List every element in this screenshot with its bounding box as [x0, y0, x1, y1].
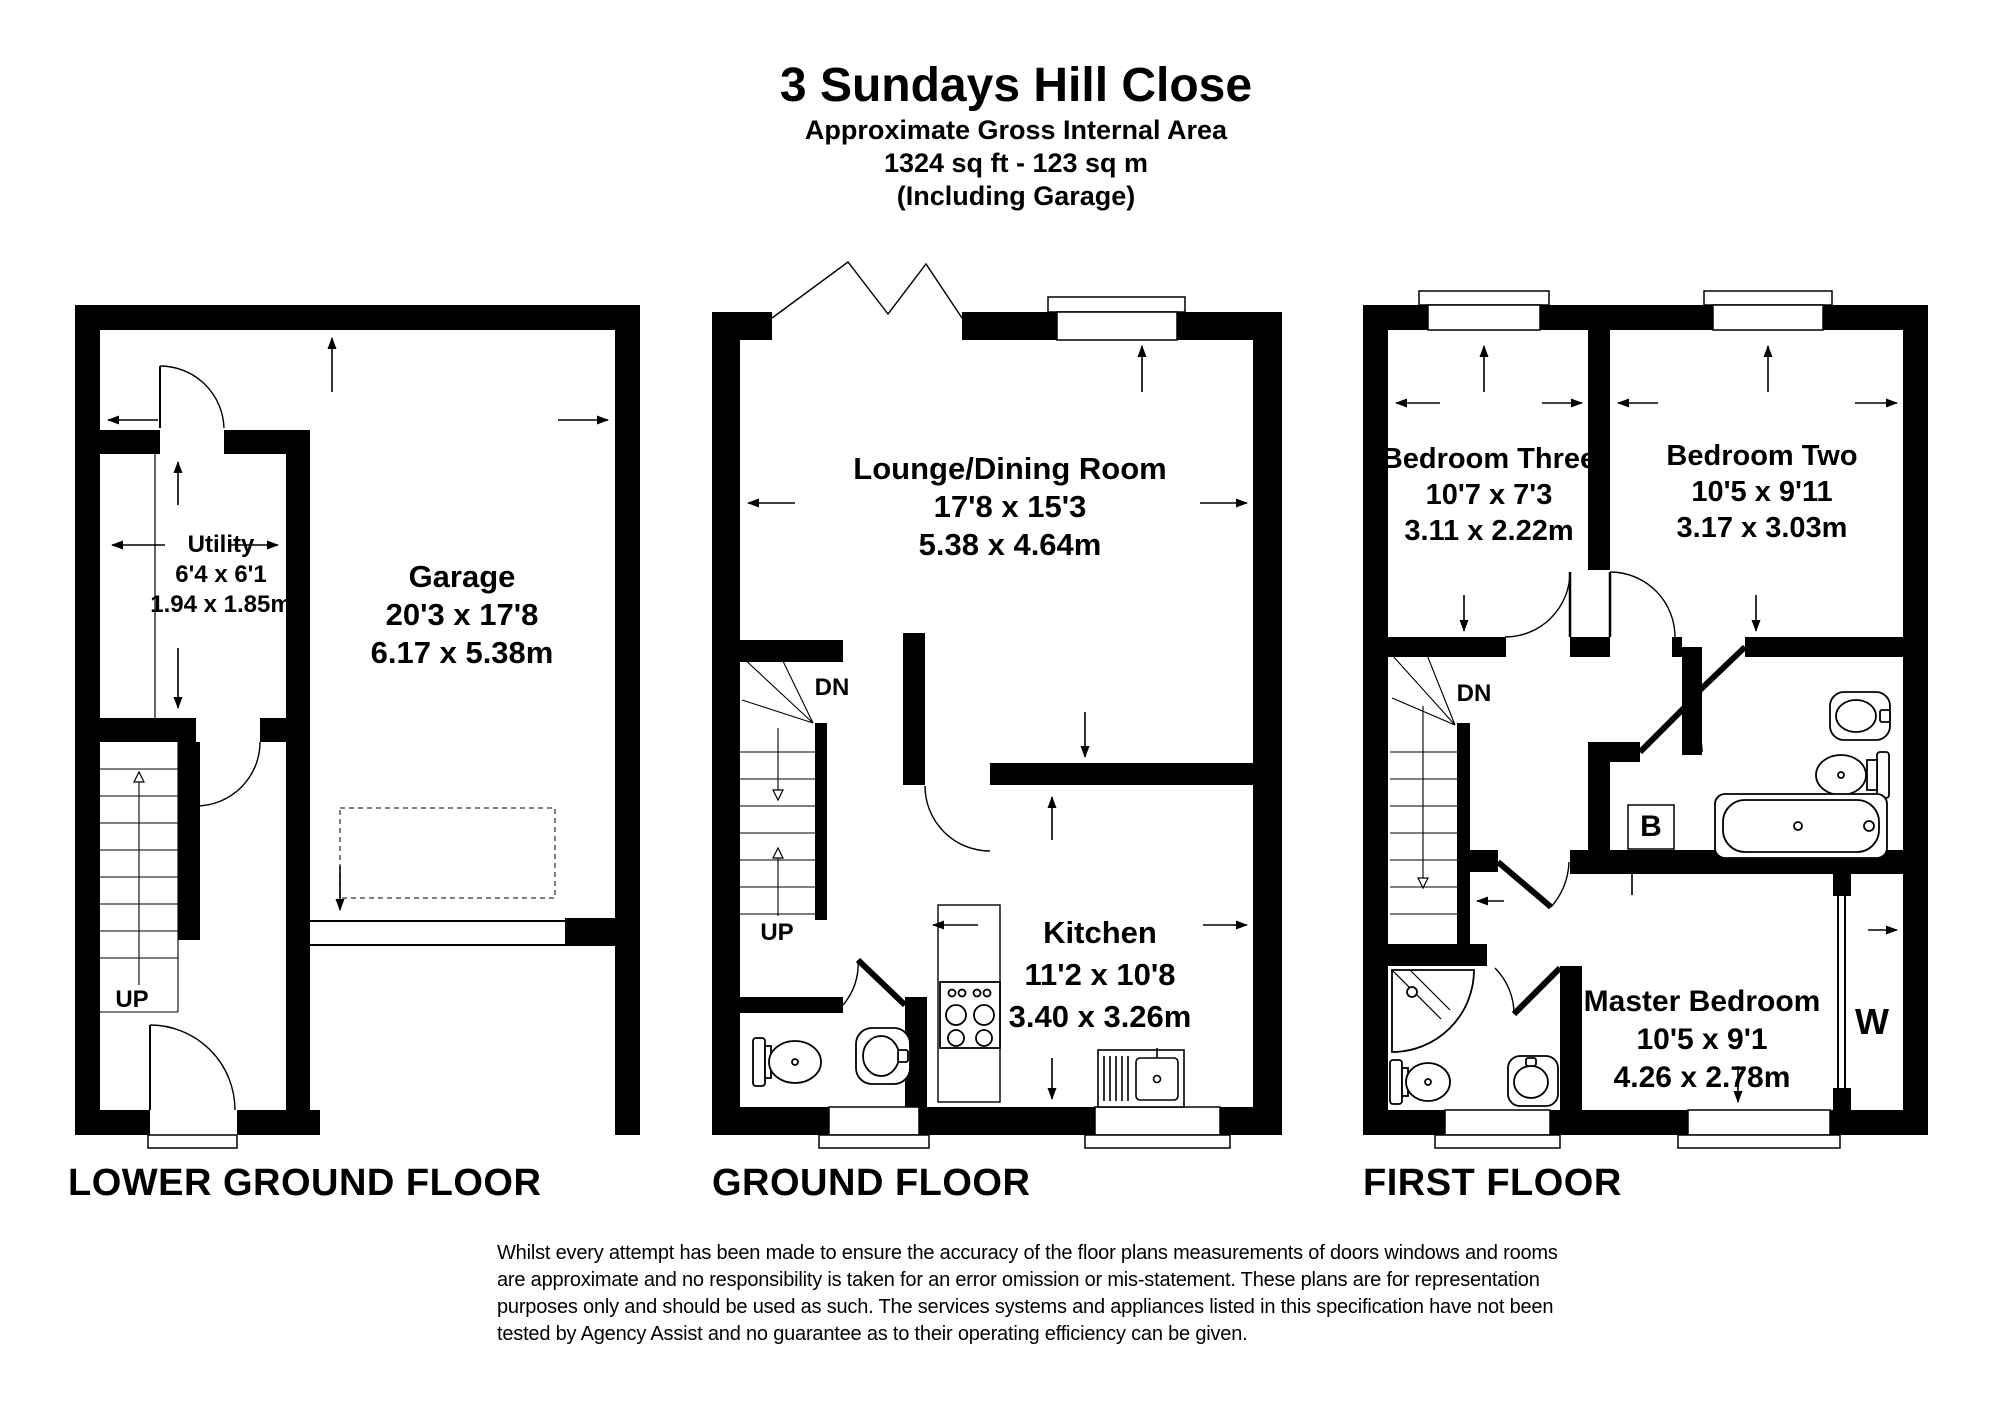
stairs-down-label-first: DN: [1457, 680, 1492, 708]
floor-label-first: FIRST FLOOR: [1363, 1162, 1622, 1205]
disclaimer-text: Whilst every attempt has been made to en…: [497, 1240, 1577, 1348]
room-label-utility: Utility 6'4 x 6'1 1.94 x 1.85m: [150, 530, 291, 620]
room-label-lounge-dining: Lounge/Dining Room 17'8 x 15'3 5.38 x 4.…: [853, 450, 1166, 564]
plan-lower-ground: [75, 305, 640, 1148]
stairs-up-label-lower: UP: [115, 986, 148, 1014]
door-arcs: [843, 786, 990, 1005]
boiler-label: B: [1640, 810, 1662, 844]
room-label-garage: Garage 20'3 x 17'8 6.17 x 5.38m: [371, 558, 554, 672]
garage-door: [310, 921, 565, 945]
toilet-icon: [753, 1038, 821, 1086]
door-arcs: [1495, 572, 1745, 1014]
subtitle-area: Approximate Gross Internal Area: [805, 115, 1227, 146]
kitchen-sink-icon: [1098, 1048, 1184, 1107]
plan-ground: [712, 262, 1282, 1148]
wardrobe-front: [1838, 896, 1845, 1088]
stairs-icon: [740, 655, 815, 916]
floor-label-ground: GROUND FLOOR: [712, 1162, 1030, 1205]
floor-label-lower-ground: LOWER GROUND FLOOR: [68, 1162, 541, 1205]
stove-icon: [940, 982, 1000, 1048]
car-space-outline: [340, 808, 555, 898]
sink-icon: [856, 1028, 910, 1084]
shower-icon: [1392, 970, 1474, 1052]
bathroom-toilet-icon: [1816, 752, 1889, 798]
ensuite-sink-icon: [1508, 1056, 1558, 1106]
subtitle-size: 1324 sq ft - 123 sq m: [884, 148, 1148, 179]
stairs-icon: [1390, 650, 1457, 914]
room-label-bedroom-three: Bedroom Three 10'7 x 7'3 3.11 x 2.22m: [1382, 441, 1596, 549]
break-line: [772, 262, 962, 318]
subtitle-note: (Including Garage): [897, 181, 1136, 212]
bath-icon: [1715, 794, 1887, 858]
bathroom-sink-icon: [1830, 692, 1890, 740]
room-label-master-bedroom: Master Bedroom 10'5 x 9'1 4.26 x 2.78m: [1584, 983, 1821, 1097]
stairs-icon: [100, 742, 178, 1012]
room-label-kitchen: Kitchen 11'2 x 10'8 3.40 x 3.26m: [1009, 912, 1192, 1038]
wardrobe-label: W: [1855, 1001, 1889, 1043]
stairs-down-label-ground: DN: [815, 674, 850, 702]
floorplan-page: 3 Sundays Hill Close Approximate Gross I…: [0, 0, 2000, 1413]
stairs-up-label-ground: UP: [760, 919, 793, 947]
front-door-step: [148, 1135, 237, 1148]
room-label-bedroom-two: Bedroom Two 10'5 x 9'11 3.17 x 3.03m: [1666, 438, 1857, 546]
ensuite-toilet-icon: [1390, 1060, 1450, 1104]
page-title: 3 Sundays Hill Close: [780, 58, 1252, 113]
